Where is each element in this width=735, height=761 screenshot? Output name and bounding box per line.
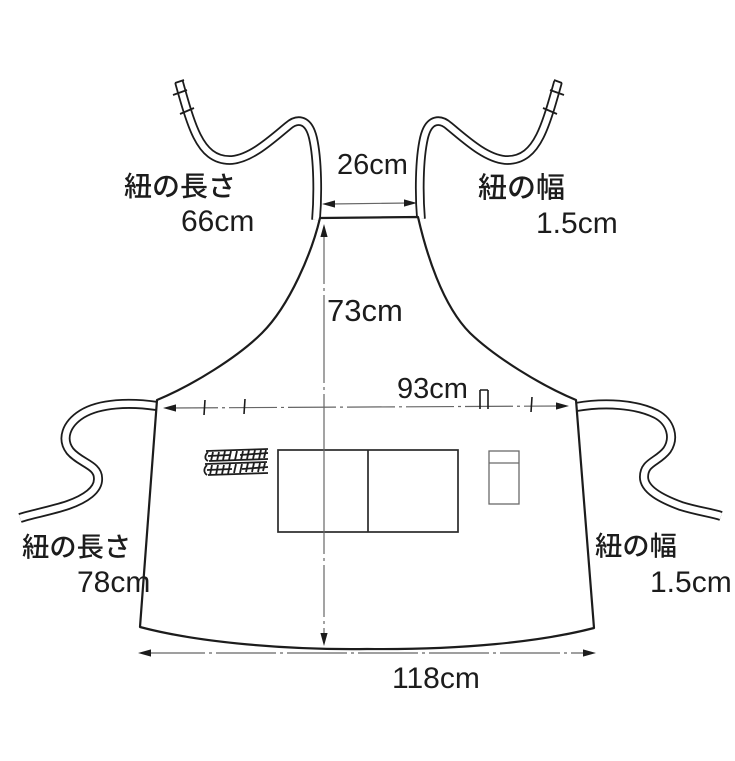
svg-text:1.5cm: 1.5cm bbox=[650, 566, 732, 599]
svg-text:78cm: 78cm bbox=[77, 566, 150, 599]
svg-text:93cm: 93cm bbox=[397, 373, 468, 405]
svg-text:73cm: 73cm bbox=[327, 293, 403, 328]
svg-text:66cm: 66cm bbox=[181, 205, 254, 238]
svg-text:26cm: 26cm bbox=[337, 149, 408, 181]
svg-text:1.5cm: 1.5cm bbox=[536, 207, 618, 240]
svg-text:118cm: 118cm bbox=[392, 662, 480, 695]
